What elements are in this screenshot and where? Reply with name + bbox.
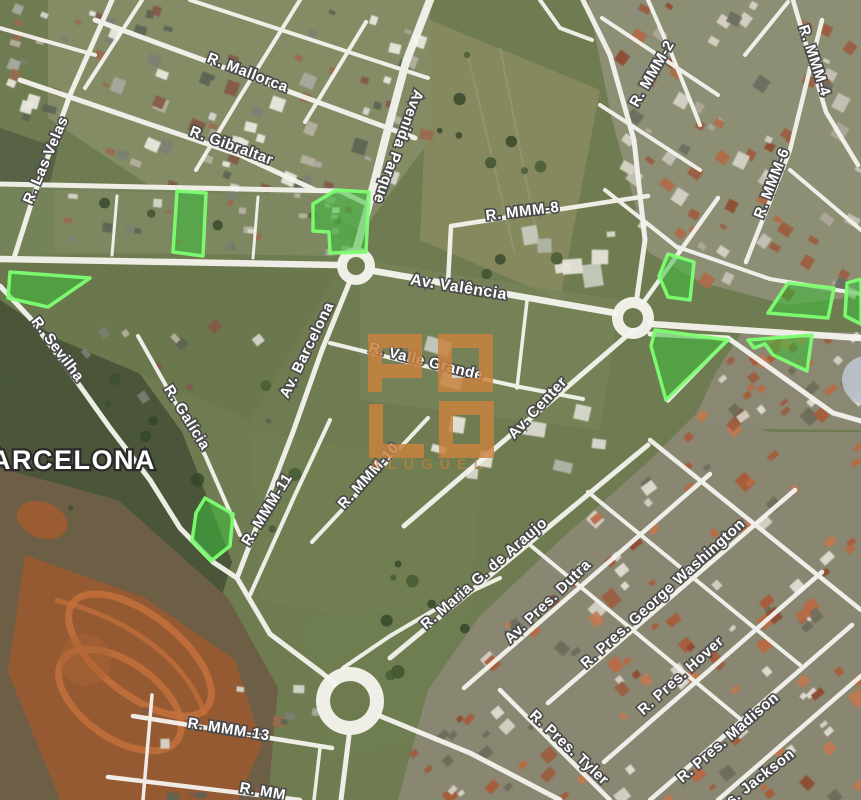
tree <box>551 252 563 264</box>
tree <box>105 400 112 407</box>
tree <box>395 561 402 568</box>
tree <box>485 157 496 168</box>
building <box>64 218 73 223</box>
building <box>166 210 171 213</box>
tree <box>495 254 506 265</box>
tree <box>140 431 151 442</box>
map-image[interactable]: R. MallorcaR. GibraltarR. Las VelasAveni… <box>0 0 861 800</box>
tree <box>506 136 518 148</box>
building <box>537 238 552 253</box>
city-label-barcelona: BARCELONA <box>0 445 156 475</box>
roundabout-2 <box>612 297 654 339</box>
building <box>521 225 539 246</box>
roundabout-island <box>330 681 370 721</box>
tree <box>464 52 470 58</box>
building <box>125 225 135 234</box>
tree <box>381 615 393 627</box>
highlighted-parcel-9[interactable] <box>845 279 861 324</box>
building <box>196 792 207 798</box>
building <box>294 193 301 198</box>
tree <box>437 128 443 134</box>
tree <box>390 574 396 580</box>
building <box>226 243 234 250</box>
building <box>592 438 607 449</box>
tree <box>521 167 528 174</box>
tree <box>191 473 205 487</box>
roundabout-island <box>623 308 643 328</box>
tree <box>460 624 470 634</box>
tree <box>481 269 491 279</box>
tree <box>456 132 463 139</box>
tree <box>261 380 272 391</box>
building <box>68 194 78 199</box>
tree <box>269 525 276 532</box>
tree <box>385 670 395 680</box>
tree <box>535 161 547 173</box>
building <box>134 228 141 233</box>
tree <box>406 575 419 588</box>
building <box>227 190 236 199</box>
building <box>281 719 288 725</box>
building <box>581 263 603 288</box>
tree <box>99 198 110 209</box>
highlighted-parcel-1[interactable] <box>173 191 206 256</box>
building <box>592 250 609 265</box>
tree <box>68 505 73 510</box>
building <box>299 213 307 218</box>
roundabout-3 <box>316 667 384 735</box>
building <box>153 199 162 208</box>
building <box>293 685 304 694</box>
building <box>236 686 244 692</box>
tree <box>109 373 121 385</box>
dirt-patch <box>59 634 111 686</box>
building <box>607 231 616 237</box>
tree <box>213 220 223 230</box>
satellite-map[interactable]: R. MallorcaR. GibraltarR. Las VelasAveni… <box>0 0 861 800</box>
logo-subtitle: ALUGUEL <box>370 457 489 473</box>
tree <box>147 209 155 217</box>
building <box>102 222 113 232</box>
tree <box>9 374 18 383</box>
building <box>160 739 169 749</box>
tree <box>148 416 157 425</box>
building <box>227 200 233 206</box>
tree <box>453 93 465 105</box>
roundabout-island <box>347 257 365 275</box>
building <box>142 707 150 713</box>
building <box>239 208 246 214</box>
